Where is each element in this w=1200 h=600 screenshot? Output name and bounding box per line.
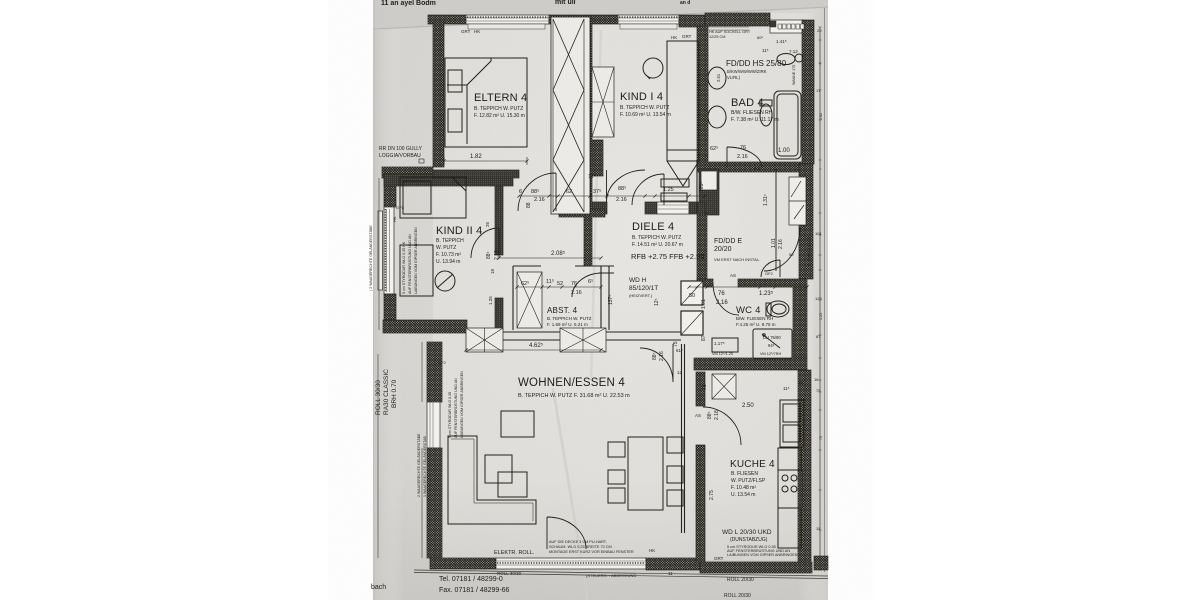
svg-text:F. 10.69 m² U. 13.54 m: F. 10.69 m² U. 13.54 m: [620, 112, 671, 118]
svg-text:2.16: 2.16: [737, 154, 748, 160]
svg-text:2.16: 2.16: [534, 197, 545, 203]
svg-text:50: 50: [689, 293, 695, 299]
svg-text:B. FLIESEN: B. FLIESEN: [731, 471, 758, 477]
svg-text:16: 16: [798, 380, 804, 385]
svg-text:GRT: GRT: [682, 34, 692, 39]
svg-text:11⁵: 11⁵: [588, 173, 596, 180]
svg-text:26: 26: [485, 221, 490, 227]
svg-text:88: 88: [526, 202, 532, 208]
svg-text:AS: AS: [695, 413, 701, 418]
svg-text:12: 12: [704, 153, 709, 158]
svg-text:11⁵: 11⁵: [762, 48, 769, 53]
svg-text:RA30 CLASSIC: RA30 CLASSIC: [383, 369, 390, 415]
svg-text:an d: an d: [680, 0, 690, 6]
svg-text:1.26: 1.26: [488, 296, 493, 305]
svg-text:76: 76: [740, 145, 746, 151]
svg-text:88⁵: 88⁵: [618, 185, 626, 192]
svg-text:WOHNEN/ESSEN 4: WOHNEN/ESSEN 4: [518, 377, 625, 389]
svg-text:KIND I 4: KIND I 4: [620, 91, 663, 103]
svg-text:GRT: GRT: [714, 556, 724, 561]
svg-text:62⁵: 62⁵: [710, 145, 718, 152]
svg-text:2.18: 2.18: [714, 410, 720, 420]
svg-text:20: 20: [817, 28, 822, 33]
svg-text:B/KW/WW/WW/ZIRK: B/KW/WW/WW/ZIRK: [727, 69, 767, 74]
svg-text:F.4.25 m² U. 8.75 m: F.4.25 m² U. 8.75 m: [736, 322, 776, 327]
svg-text:W. PUTZ: W. PUTZ: [436, 245, 456, 251]
svg-text:B. TEPPICH W. PUTZ: B. TEPPICH W. PUTZ: [620, 105, 669, 111]
svg-text:SCHWELLE 15 CM: SCHWELLE 15 CM: [807, 236, 811, 266]
svg-text:1 WAAGERECHTE GELÄNDERSTAB: 1 WAAGERECHTE GELÄNDERSTAB: [423, 435, 427, 497]
svg-text:WD H: WD H: [629, 277, 647, 284]
svg-text:137⁵: 137⁵: [608, 295, 614, 305]
svg-text:101: 101: [815, 231, 822, 236]
svg-text:F. 12.82 m² U. 15.30 m: F. 12.82 m² U. 15.30 m: [474, 113, 525, 119]
svg-text:88⁵: 88⁵: [486, 251, 492, 259]
svg-text:87: 87: [816, 334, 821, 339]
svg-text:60²: 60²: [757, 35, 763, 40]
svg-text:ROLL 20/30: ROLL 20/30: [727, 577, 754, 583]
svg-text:mit uli: mit uli: [555, 0, 576, 6]
svg-text:16: 16: [814, 377, 819, 382]
svg-text:123: 123: [815, 296, 822, 301]
svg-text:75: 75: [673, 341, 679, 347]
svg-text:LOGGIA/VORBAU: LOGGIA/VORBAU: [379, 153, 421, 159]
svg-text:KIND II 4: KIND II 4: [436, 225, 482, 237]
svg-text:85/120/1T: 85/120/1T: [629, 285, 658, 292]
svg-text:2.16: 2.16: [778, 239, 784, 249]
svg-text:ELEKTR. ROLL.: ELEKTR. ROLL.: [494, 550, 535, 556]
svg-text:18: 18: [490, 268, 495, 274]
svg-text:WC 4: WC 4: [736, 305, 761, 316]
svg-text:B. TEPPICH: B. TEPPICH: [436, 238, 464, 244]
svg-text:AUF DIE DECKE 3 CM PU-HART-: AUF DIE DECKE 3 CM PU-HART-: [549, 540, 608, 544]
svg-text:U. 13.94 m: U. 13.94 m: [436, 259, 460, 265]
svg-text:87: 87: [701, 335, 707, 341]
svg-text:1.17⁵: 1.17⁵: [714, 341, 725, 346]
svg-text:2.08⁵: 2.08⁵: [551, 250, 566, 257]
svg-text:5 cm STYRODUR WLG 0.35: 5 cm STYRODUR WLG 0.35: [448, 392, 452, 438]
svg-text:88⁵: 88⁵: [531, 188, 539, 195]
svg-text:FD/DD HS 25/80: FD/DD HS 25/80: [726, 59, 787, 68]
svg-text:BRH 0.70: BRH 0.70: [391, 379, 398, 408]
svg-text:1.25: 1.25: [663, 187, 674, 193]
svg-text:HK: HK: [474, 29, 480, 34]
svg-text:ROLL 20/30: ROLL 20/30: [724, 593, 751, 599]
svg-text:bach: bach: [371, 584, 386, 591]
svg-text:B. TEPPICH W. PUTZ: B. TEPPICH W. PUTZ: [547, 316, 592, 321]
svg-text:F. 7.38 m² U. 11.17 m: F. 7.38 m² U. 11.17 m: [731, 117, 779, 123]
svg-text:U. 13.54 m: U. 13.54 m: [731, 492, 755, 498]
svg-text:F. 10.73 m²: F. 10.73 m²: [436, 252, 461, 258]
svg-text:1.00: 1.00: [778, 148, 790, 154]
svg-text:VM ERST NACH INSTAL.: VM ERST NACH INSTAL.: [714, 257, 760, 262]
svg-text:F. 10.48 m²: F. 10.48 m²: [731, 485, 756, 491]
svg-text:ROLL 30/30: ROLL 30/30: [375, 380, 382, 415]
svg-text:Fax. 07181 / 48299-66: Fax. 07181 / 48299-66: [439, 587, 510, 594]
svg-text:( 2 WAAGERECHTE GELÄNDERSTÄBE: ( 2 WAAGERECHTE GELÄNDERSTÄBE: [369, 225, 373, 291]
svg-text:(HEIZVERT.): (HEIZVERT.): [629, 293, 653, 298]
svg-text:11⁵: 11⁵: [783, 386, 790, 391]
svg-text:2 WAAGERECHTE GELÄNDERSTÄBE: 2 WAAGERECHTE GELÄNDERSTÄBE: [417, 433, 421, 497]
svg-text:1.82: 1.82: [470, 154, 482, 160]
svg-text:76: 76: [571, 281, 577, 287]
svg-text:W. PUTZ/FLSP: W. PUTZ/FLSP: [731, 478, 766, 484]
svg-text:2.51: 2.51: [716, 73, 721, 82]
svg-text:LAIBUNGEN VOM GIPSER ANBRINGEN: LAIBUNGEN VOM GIPSER ANBRINGEN: [414, 227, 418, 294]
svg-text:2.50: 2.50: [742, 403, 754, 409]
svg-text:2.16: 2.16: [659, 351, 665, 361]
svg-text:VL/RL): VL/RL): [727, 75, 741, 80]
svg-text:B. TEPPICH W. PUTZ: B. TEPPICH W. PUTZ: [632, 235, 681, 241]
svg-text:61⁵: 61⁵: [676, 348, 683, 353]
svg-text:12: 12: [677, 370, 683, 375]
svg-text:11⁵: 11⁵: [546, 278, 554, 285]
svg-text:88⁵: 88⁵: [652, 352, 658, 360]
svg-text:2.16: 2.16: [616, 197, 627, 203]
svg-text:1.23: 1.23: [819, 313, 823, 320]
svg-text:ABST. 4: ABST. 4: [547, 306, 578, 315]
svg-text:RR DN 100 GULLY: RR DN 100 GULLY: [379, 146, 423, 152]
svg-text:12/25 CM: 12/25 CM: [709, 35, 725, 39]
svg-text:F. 1.69 m² U. 5.21 m: F. 1.69 m² U. 5.21 m: [547, 322, 588, 327]
svg-text:7: 7: [819, 168, 823, 170]
svg-text:5 cm STYRODUR WLG 0.35 HK: 5 cm STYRODUR WLG 0.35 HK: [402, 241, 406, 294]
svg-text:B. TEPPICH W. PUTZ F. 31.68: B. TEPPICH W. PUTZ F. 31.68 m² U. 22.53 …: [518, 393, 630, 399]
svg-text:62: 62: [566, 189, 572, 195]
svg-text:50: 50: [789, 252, 794, 257]
svg-text:RFB +2.75 FFB +2.90: RFB +2.75 FFB +2.90: [631, 252, 704, 261]
svg-text:(DUNSTABZUG): (DUNSTABZUG): [730, 537, 768, 543]
svg-text:DU 75/90: DU 75/90: [763, 335, 781, 340]
svg-text:7.12: 7.12: [789, 49, 798, 54]
svg-text:20/20: 20/20: [714, 246, 732, 253]
svg-text:FD/DD E: FD/DD E: [714, 238, 742, 245]
svg-text:B. TEPPICH W. PUTZ: B. TEPPICH W. PUTZ: [474, 106, 523, 112]
svg-text:GP2: GP2: [396, 205, 405, 210]
svg-text:VM 12⁵/1.25: VM 12⁵/1.25: [712, 352, 733, 356]
svg-text:52: 52: [557, 281, 563, 287]
svg-text:KUCHE 4: KUCHE 4: [730, 459, 775, 470]
svg-text:88⁵: 88⁵: [707, 411, 713, 419]
svg-text:HK: HK: [671, 35, 677, 40]
svg-text:BAD 4: BAD 4: [731, 97, 764, 109]
svg-text:1.01: 1.01: [771, 238, 777, 248]
svg-text:HK AUF SOCKELL GRT: HK AUF SOCKELL GRT: [709, 30, 751, 34]
svg-text:GRT: GRT: [461, 29, 471, 34]
svg-text:VM 12⁵/7RH: VM 12⁵/7RH: [760, 352, 781, 356]
svg-text:B/W. FLIESEN RH: B/W. FLIESEN RH: [731, 110, 773, 116]
svg-text:WANNE 175: WANNE 175: [792, 65, 796, 85]
svg-text:LAIBUNGEN VOM GIPSER ANBRINGEN: LAIBUNGEN VOM GIPSER ANBRINGEN: [460, 371, 464, 438]
svg-text:2.16: 2.16: [571, 290, 582, 296]
svg-text:11 an ayel Bodm: 11 an ayel Bodm: [381, 0, 436, 7]
svg-text:12⁵: 12⁵: [654, 298, 660, 306]
svg-text:75: 75: [819, 436, 823, 440]
svg-text:62⁵: 62⁵: [521, 280, 529, 287]
svg-text:94⁵: 94⁵: [768, 343, 775, 348]
svg-text:76: 76: [718, 291, 725, 297]
svg-text:105⁵: 105⁵: [699, 182, 705, 192]
svg-text:SCHAUM. WLG 0.25 BREITE 70 CM: SCHAUM. WLG 0.25 BREITE 70 CM: [549, 545, 612, 549]
svg-text:1.23⁵: 1.23⁵: [759, 290, 774, 297]
svg-text:B/W. FLIESEN RH: B/W. FLIESEN RH: [736, 316, 773, 321]
svg-text:HK: HK: [392, 216, 397, 222]
svg-text:AUF FENSTERBRÜSTUNG UND AN: AUF FENSTERBRÜSTUNG UND AN: [454, 378, 458, 438]
svg-text:17: 17: [816, 88, 821, 93]
svg-text:LAIBUNGEN VOM GIPSER ANBRINGEN: LAIBUNGEN VOM GIPSER ANBRINGEN: [727, 553, 798, 557]
svg-text:AS: AS: [730, 273, 736, 278]
svg-text:F. 14.51 m² U. 20.67 m: F. 14.51 m² U. 20.67 m: [632, 242, 683, 248]
svg-text:4.62⁵: 4.62⁵: [529, 342, 544, 349]
svg-text:HK: HK: [649, 548, 655, 553]
svg-text:6⁵: 6⁵: [588, 278, 593, 285]
svg-text:37⁵: 37⁵: [593, 188, 601, 195]
svg-text:1.62: 1.62: [819, 113, 823, 120]
svg-text:GF2: GF2: [438, 360, 447, 365]
svg-text:ELTERN 4: ELTERN 4: [474, 92, 527, 104]
svg-text:DIELE 4: DIELE 4: [632, 221, 674, 233]
svg-text:1.41⁵: 1.41⁵: [776, 39, 787, 44]
svg-text:6: 6: [519, 189, 522, 195]
svg-text:GF2: GF2: [765, 271, 774, 276]
svg-text:AS: AS: [754, 166, 760, 171]
svg-text:75: 75: [702, 384, 708, 390]
svg-text:2.16: 2.16: [716, 300, 728, 306]
svg-text:WD L 20/30 UKD: WD L 20/30 UKD: [722, 529, 772, 536]
svg-text:1.31⁵: 1.31⁵: [763, 194, 769, 206]
svg-text:2.16: 2.16: [494, 250, 500, 260]
svg-text:1.01: 1.01: [701, 299, 707, 309]
svg-text:MONTAGE ERST KURZ VOR EINBAU F: MONTAGE ERST KURZ VOR EINBAU FENSTER: [549, 550, 634, 554]
svg-text:AUF FENSTERBRÜSTUNG UND AN: AUF FENSTERBRÜSTUNG UND AN: [408, 234, 412, 294]
svg-text:2.75: 2.75: [709, 490, 715, 500]
svg-text:75: 75: [816, 388, 821, 393]
svg-text:Tel. 07181 / 48299-0: Tel. 07181 / 48299-0: [439, 576, 503, 583]
